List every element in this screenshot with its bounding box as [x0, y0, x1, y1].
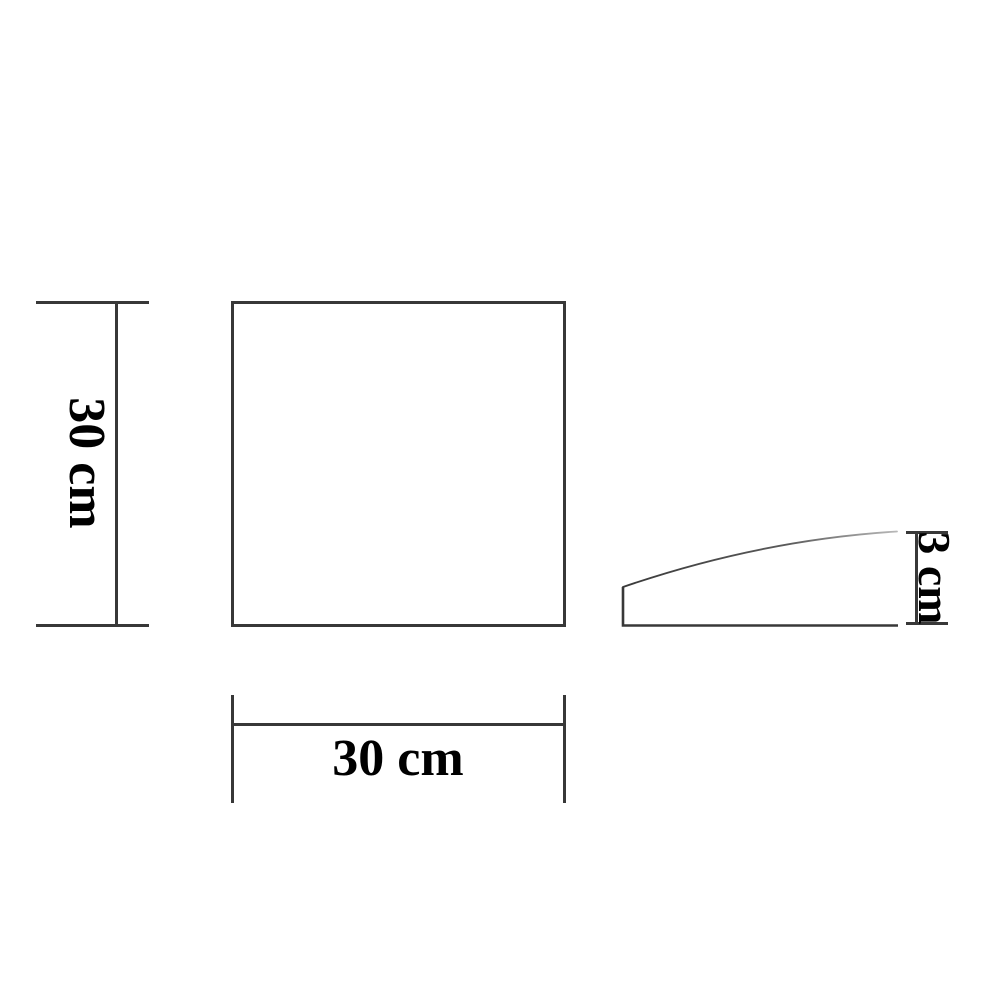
side-profile-curved-top	[623, 532, 897, 588]
side-view-profile	[0, 0, 1000, 1000]
technical-drawing-canvas: 30 cm 30 cm 3 cm	[0, 0, 1000, 1000]
side-height-dimension-label: 3 cm	[909, 508, 959, 648]
side-profile-base-outline	[623, 587, 898, 626]
